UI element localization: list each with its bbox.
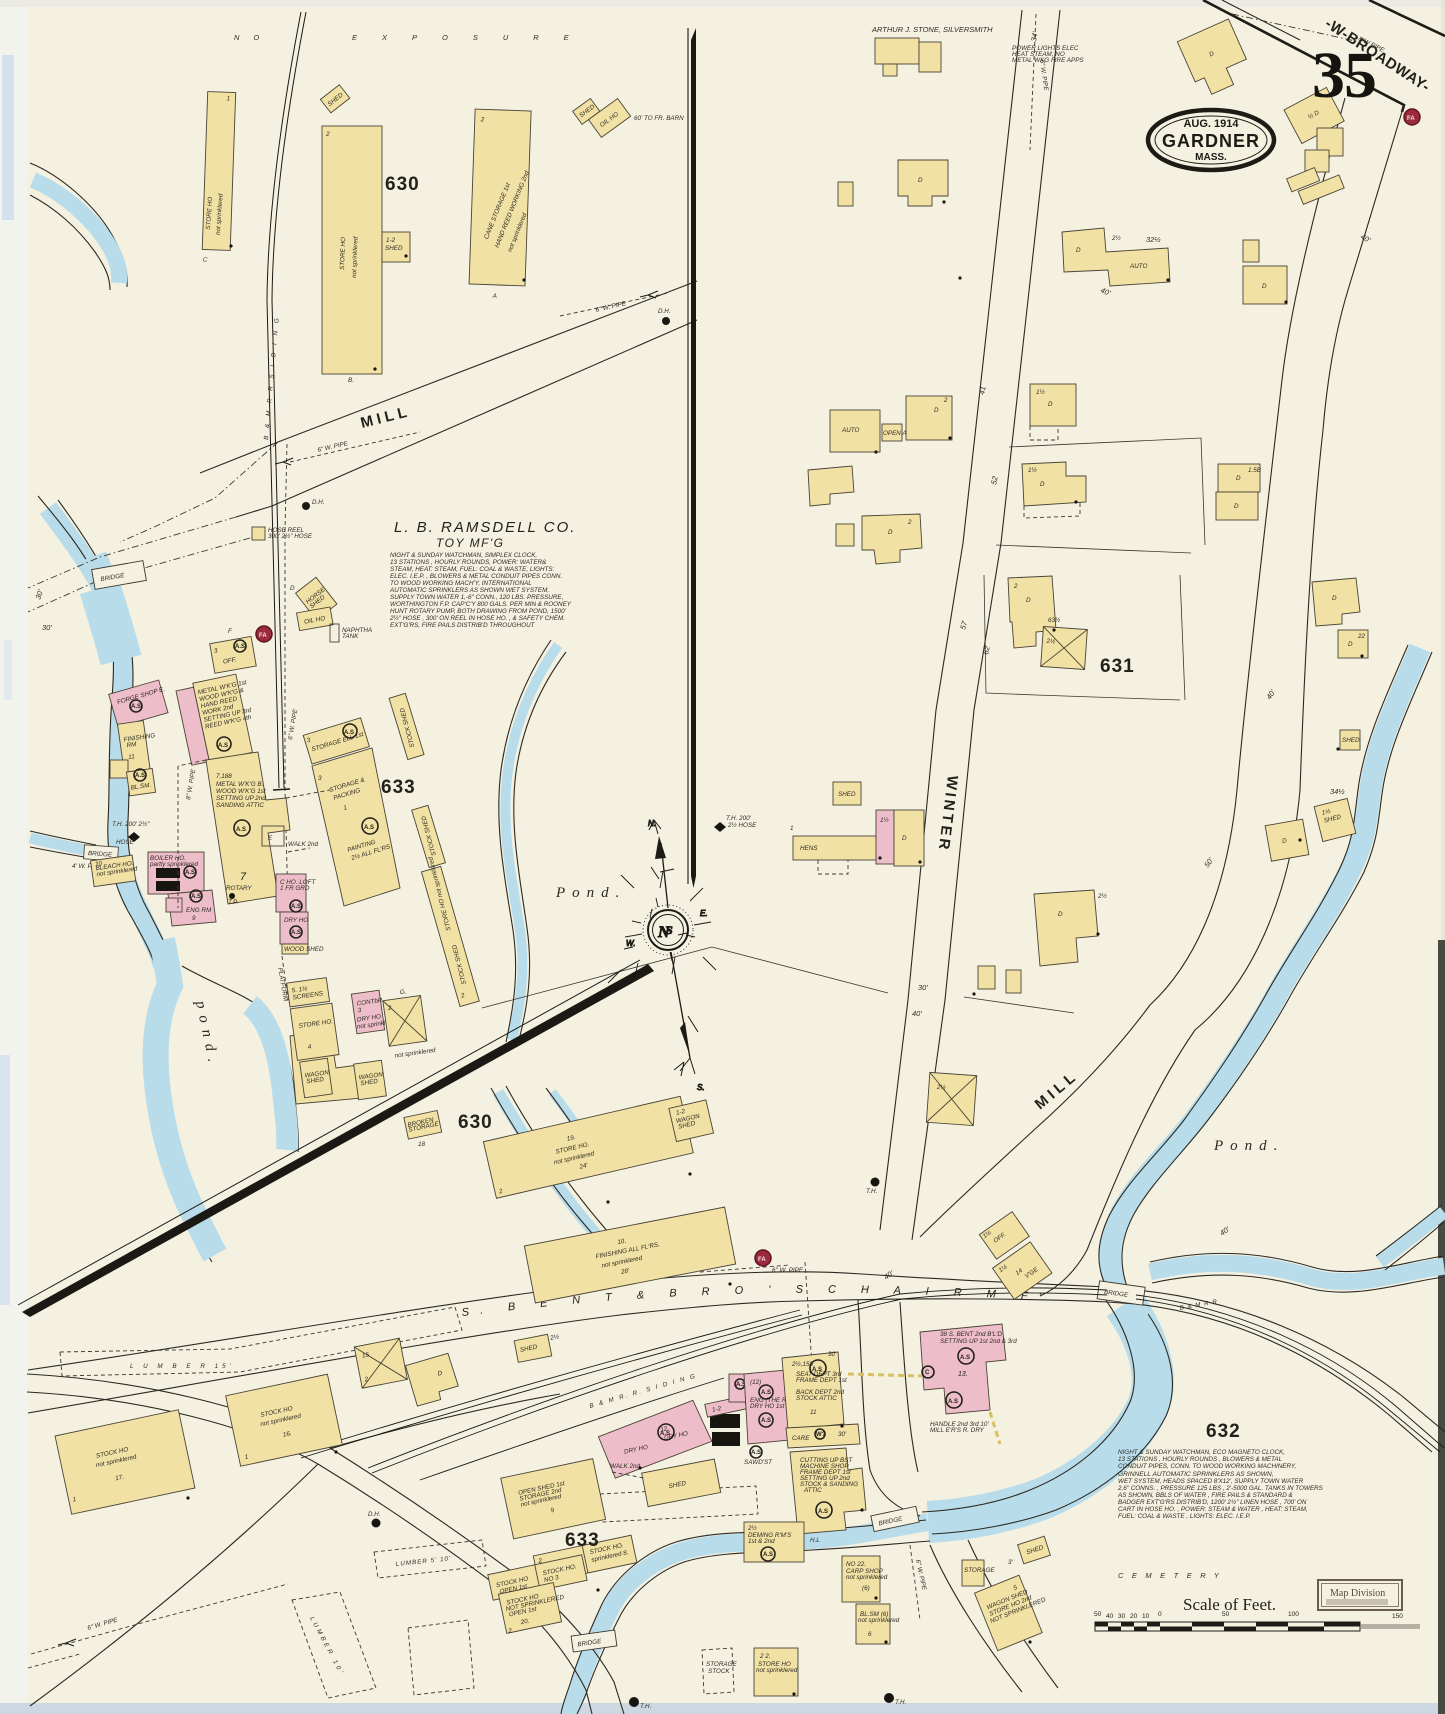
- svg-text:EXT'G'RS, FIRE PAILS DISTRIB'D: EXT'G'RS, FIRE PAILS DISTRIB'D THROUGHOU…: [390, 622, 536, 629]
- svg-text:T.H.: T.H.: [895, 1699, 906, 1706]
- svg-text:34½: 34½: [1330, 787, 1345, 796]
- svg-text:D: D: [918, 177, 923, 184]
- svg-text:A.S: A.S: [364, 825, 374, 831]
- svg-text:H.L: H.L: [810, 1537, 820, 1544]
- svg-text:3: 3: [318, 775, 322, 782]
- svg-text:GARDNER: GARDNER: [1162, 131, 1260, 151]
- svg-text:ENG RM: ENG RM: [186, 907, 212, 914]
- svg-text:631: 631: [1100, 656, 1135, 677]
- svg-text:32½: 32½: [1146, 235, 1161, 244]
- svg-text:30': 30': [838, 1431, 847, 1438]
- svg-text:ARTHUR J. STONE, SILVERSMITH: ARTHUR J. STONE, SILVERSMITH: [871, 25, 993, 34]
- svg-text:632: 632: [1206, 1421, 1241, 1442]
- svg-text:2: 2: [1013, 583, 1018, 590]
- svg-text:L U M B E R 15': L U M B E R 15': [130, 1363, 235, 1370]
- svg-text:BADGER EXT'G'RS DISTRIB'D, 120: BADGER EXT'G'RS DISTRIB'D, 1200' 2½" LIN…: [1118, 1498, 1307, 1506]
- svg-text:WOOD W'K'G 1st: WOOD W'K'G 1st: [216, 788, 266, 795]
- svg-text:ATTIC: ATTIC: [803, 1487, 822, 1494]
- svg-text:A.S: A.S: [235, 644, 245, 650]
- svg-text:NO 22.: NO 22.: [846, 1561, 866, 1568]
- svg-text:AUTO: AUTO: [1129, 263, 1147, 270]
- svg-text:T.H. 200': T.H. 200': [726, 815, 752, 822]
- svg-text:ROTARY: ROTARY: [226, 885, 252, 892]
- svg-text:A.S: A.S: [131, 704, 141, 710]
- svg-text:FUEL: COAL & WASTE , LIGHTS: E: FUEL: COAL & WASTE , LIGHTS: ELEC. I.E.P…: [1118, 1513, 1251, 1520]
- svg-text:SHED: SHED: [385, 245, 403, 252]
- svg-text:Scale of Feet.: Scale of Feet.: [1183, 1595, 1276, 1614]
- svg-text:METAL W'K'G B.: METAL W'K'G B.: [216, 781, 263, 788]
- svg-text:STOCK ATTIC: STOCK ATTIC: [796, 1395, 837, 1402]
- svg-text:60' TO FR. BARN: 60' TO FR. BARN: [634, 115, 684, 122]
- svg-text:1: 1: [226, 95, 230, 102]
- svg-text:SAWD'ST: SAWD'ST: [744, 1459, 773, 1466]
- svg-text:D: D: [1234, 503, 1239, 510]
- svg-text:50: 50: [1094, 1611, 1102, 1618]
- svg-text:C: C: [925, 1370, 930, 1376]
- svg-text:SUPPLY TOWN WATER 1,-6" CONN.,: SUPPLY TOWN WATER 1,-6" CONN., 120 LBS. …: [390, 594, 564, 601]
- svg-text:B.: B.: [348, 377, 354, 384]
- svg-text:SETTING UP 1st 2nd & 3rd: SETTING UP 1st 2nd & 3rd: [940, 1338, 1017, 1345]
- svg-text:L. B. RAMSDELL CO.: L. B. RAMSDELL CO.: [394, 519, 576, 536]
- svg-text:EXPOSURE: EXPOSURE: [352, 33, 594, 42]
- svg-text:13.: 13.: [958, 1371, 968, 1378]
- svg-text:WALK 2nd: WALK 2nd: [610, 1463, 640, 1470]
- svg-text:(6): (6): [862, 1585, 870, 1592]
- svg-text:MASS.: MASS.: [1195, 152, 1227, 163]
- svg-text:13 STATIONS , HOURLY ROUNDS,: 13 STATIONS , HOURLY ROUNDS, POWER: WATE…: [390, 559, 546, 566]
- svg-text:1 FR GRD: 1 FR GRD: [280, 885, 310, 892]
- svg-text:A.S: A.S: [344, 730, 354, 736]
- svg-text:TANK: TANK: [342, 633, 359, 640]
- svg-text:A.S: A.S: [191, 894, 201, 900]
- svg-text:STEAM, HEAT: STEAM, FUEL: COAL: STEAM, HEAT: STEAM, FUEL: COAL & WASTE, …: [390, 566, 555, 573]
- svg-text:D: D: [1236, 475, 1241, 482]
- svg-text:S.: S.: [697, 1083, 705, 1092]
- svg-text:DRY HO 1st: DRY HO 1st: [750, 1403, 785, 1410]
- svg-text:D.H.: D.H.: [658, 308, 671, 315]
- svg-text:35: 35: [1312, 39, 1376, 112]
- svg-text:1: 1: [790, 825, 794, 832]
- svg-text:CONDUIT PIPES, CONN. TO WOOD: CONDUIT PIPES, CONN. TO WOOD WORKING MAC…: [1118, 1463, 1296, 1470]
- svg-text:HOSE: HOSE: [116, 839, 135, 846]
- svg-text:9: 9: [192, 915, 196, 922]
- svg-text:A.S: A.S: [291, 930, 301, 936]
- svg-text:AUG. 1914: AUG. 1914: [1183, 118, 1239, 130]
- svg-text:C: C: [203, 256, 208, 263]
- svg-text:T.H.: T.H.: [866, 1188, 877, 1195]
- svg-text:STORAGE: STORAGE: [706, 1661, 737, 1668]
- svg-text:630: 630: [458, 1112, 493, 1133]
- svg-text:A.S: A.S: [761, 1390, 771, 1396]
- svg-text:S: S: [666, 923, 673, 937]
- svg-text:150: 150: [1392, 1613, 1403, 1620]
- svg-text:2,6" CONNS. , PRESSURE 125 LBS: 2,6" CONNS. , PRESSURE 125 LBS , 2'-5000…: [1117, 1485, 1324, 1492]
- svg-text:SHED: SHED: [1342, 737, 1360, 744]
- svg-text:NIGHT & SUNDAY WATCHMAN, SIMPL: NIGHT & SUNDAY WATCHMAN, SIMPLEX CLOCK,: [390, 552, 537, 559]
- svg-text:CART IN HOSE HO. , POWER: STEA: CART IN HOSE HO. , POWER: STEAM & WATER …: [1118, 1506, 1308, 1513]
- svg-text:METAL WKG FIRE APPS: METAL WKG FIRE APPS: [1012, 57, 1084, 64]
- svg-text:10: 10: [1142, 1613, 1150, 1620]
- svg-text:633: 633: [381, 777, 416, 798]
- svg-text:STORE HO: STORE HO: [339, 237, 347, 270]
- svg-text:G.: G.: [399, 988, 407, 996]
- svg-text:N.: N.: [648, 819, 656, 828]
- svg-text:2½: 2½: [1097, 892, 1108, 900]
- svg-text:E.: E.: [700, 909, 708, 918]
- svg-text:2: 2: [325, 131, 330, 138]
- svg-text:(12): (12): [750, 1379, 761, 1386]
- svg-text:HUNT ROTARY PUMP, BOTH DRAWIN: HUNT ROTARY PUMP, BOTH DRAWING FROM POND…: [390, 608, 567, 615]
- svg-text:D: D: [934, 407, 939, 414]
- svg-text:22: 22: [1357, 633, 1366, 640]
- svg-text:2 2.: 2 2.: [759, 1653, 771, 1660]
- svg-text:RM: RM: [126, 741, 137, 749]
- svg-text:T.H.: T.H.: [640, 1703, 651, 1710]
- svg-text:2: 2: [943, 397, 948, 404]
- svg-text:ELEC. I.E.P. , BLOWERS & METAL: ELEC. I.E.P. , BLOWERS & METAL CONDUIT P…: [390, 573, 562, 580]
- svg-text:2: 2: [480, 116, 485, 123]
- svg-text:HENS: HENS: [800, 845, 818, 852]
- svg-text:STORAGE: STORAGE: [964, 1567, 995, 1574]
- svg-text:D: D: [1076, 247, 1081, 254]
- svg-text:NIGHT & SUNDAY WATCHMAN, ECO: NIGHT & SUNDAY WATCHMAN, ECO MAGNETO CLO…: [1118, 1449, 1285, 1456]
- svg-text:SHED: SHED: [838, 791, 856, 798]
- svg-text:DRY HO: DRY HO: [284, 917, 308, 924]
- svg-text:D: D: [1048, 401, 1053, 408]
- svg-text:NO: NO: [234, 33, 273, 42]
- svg-text:2½: 2½: [1111, 234, 1122, 242]
- svg-text:A.S: A.S: [763, 1552, 773, 1558]
- svg-text:40': 40': [912, 1009, 922, 1018]
- svg-text:50: 50: [1222, 1611, 1230, 1618]
- svg-text:D: D: [1040, 481, 1045, 488]
- svg-text:D: D: [902, 835, 907, 842]
- svg-text:FA: FA: [758, 1257, 766, 1263]
- svg-text:Pond.: Pond.: [555, 885, 626, 901]
- svg-text:TOY MF'G: TOY MF'G: [436, 536, 505, 550]
- svg-text:not sprinklered: not sprinklered: [846, 1574, 888, 1581]
- svg-text:300' 2½" HOSE: 300' 2½" HOSE: [268, 532, 313, 540]
- svg-text:11: 11: [810, 1409, 817, 1416]
- svg-text:A.S: A.S: [818, 1509, 828, 1515]
- svg-text:30': 30': [42, 623, 52, 632]
- svg-text:7,188: 7,188: [216, 773, 232, 780]
- svg-text:D.H.: D.H.: [368, 1511, 381, 1518]
- svg-text:1.5B: 1.5B: [1248, 467, 1261, 474]
- svg-text:2½: 2½: [747, 1524, 758, 1532]
- svg-text:2½: 2½: [1045, 637, 1056, 646]
- svg-text:T.H. 200' 2½": T.H. 200' 2½": [112, 820, 150, 828]
- svg-text:D: D: [888, 529, 893, 536]
- svg-text:W.: W.: [626, 939, 635, 948]
- svg-text:TO WOOD WORKING MACH'Y, INTER: TO WOOD WORKING MACH'Y, INTERNATIONAL: [390, 580, 532, 587]
- svg-text:633: 633: [565, 1530, 600, 1551]
- svg-text:SANDING ATTIC: SANDING ATTIC: [216, 802, 264, 809]
- svg-text:WORTHINGTON F.P. CAP'C'Y 800: WORTHINGTON F.P. CAP'C'Y 800 GALS. PER M…: [390, 601, 572, 608]
- svg-text:0: 0: [1158, 1611, 1162, 1618]
- svg-text:Map Division: Map Division: [1330, 1588, 1385, 1599]
- svg-text:CEMETERY: CEMETERY: [1118, 1571, 1227, 1580]
- svg-text:CARE: CARE: [792, 1435, 810, 1442]
- svg-text:30': 30': [828, 1351, 837, 1358]
- svg-text:A.S: A.S: [960, 1355, 970, 1361]
- svg-text:18: 18: [418, 1141, 426, 1148]
- svg-text:WALK 2nd: WALK 2nd: [288, 841, 318, 848]
- svg-text:2½: 2½: [936, 1083, 947, 1092]
- svg-text:A.S: A.S: [751, 1450, 761, 1456]
- svg-text:AUTOMATIC SPRINKLERS AS SHOWN: AUTOMATIC SPRINKLERS AS SHOWN WET SYSTEM…: [389, 587, 549, 594]
- svg-text:A.S: A.S: [761, 1418, 771, 1424]
- svg-text:11: 11: [128, 753, 135, 761]
- svg-text:2½" HOSE , 300' ON REEL IN HOS: 2½" HOSE , 300' ON REEL IN HOSE HO. , & …: [389, 614, 565, 622]
- svg-text:not sprinklered: not sprinklered: [858, 1617, 900, 1624]
- svg-text:1½: 1½: [880, 816, 890, 824]
- svg-text:not sprinklered: not sprinklered: [351, 236, 359, 278]
- svg-text:2: 2: [907, 519, 912, 526]
- svg-text:Pond.: Pond.: [1213, 1138, 1284, 1154]
- svg-text:A.S: A.S: [948, 1399, 958, 1405]
- svg-text:A.S: A.S: [812, 1367, 822, 1373]
- svg-text:WET SYSTEM, HEADS SPACED 8'X1: WET SYSTEM, HEADS SPACED 8'X12', SUPPLY …: [1118, 1478, 1304, 1485]
- svg-text:6" W. PIPE: 6" W. PIPE: [772, 1267, 804, 1274]
- svg-text:not sprinklered: not sprinklered: [756, 1667, 798, 1674]
- svg-text:W?: W?: [816, 1432, 826, 1438]
- svg-text:20: 20: [1130, 1613, 1138, 1620]
- svg-text:T.P.: T.P.: [228, 899, 238, 906]
- svg-text:STOCK: STOCK: [708, 1668, 730, 1675]
- svg-text:13 STATIONS , HOURLY ROUNDS: 13 STATIONS , HOURLY ROUNDS , BLOWERS & …: [1118, 1456, 1283, 1463]
- svg-text:1½: 1½: [1036, 388, 1046, 396]
- svg-text:FA: FA: [1407, 116, 1415, 122]
- svg-text:4' W. P.: 4' W. P.: [72, 863, 93, 870]
- svg-text:100: 100: [1288, 1611, 1299, 1618]
- svg-text:GRINNELL AUTOMATIC SPRINKLER: GRINNELL AUTOMATIC SPRINKLERS AS SHOWN,: [1118, 1471, 1274, 1478]
- svg-text:A.S: A.S: [218, 743, 228, 749]
- svg-text:FA: FA: [259, 633, 267, 639]
- svg-text:30': 30': [918, 983, 928, 992]
- svg-text:40: 40: [1106, 1613, 1114, 1620]
- svg-text:3': 3': [1008, 1559, 1014, 1566]
- svg-text:7: 7: [240, 871, 247, 883]
- svg-text:A.S: A.S: [291, 904, 301, 910]
- svg-text:AUTO: AUTO: [841, 427, 859, 434]
- svg-text:D: D: [1058, 911, 1063, 918]
- svg-text:63½: 63½: [1048, 616, 1061, 624]
- svg-text:partly sprinklered: partly sprinklered: [149, 861, 198, 868]
- svg-text:FRAME DEPT 1st: FRAME DEPT 1st: [796, 1377, 847, 1384]
- svg-text:D: D: [1262, 283, 1267, 290]
- svg-text:D: D: [290, 585, 295, 592]
- svg-text:1st & 2nd: 1st & 2nd: [748, 1538, 775, 1545]
- svg-text:D: D: [1332, 595, 1337, 602]
- svg-text:630: 630: [385, 174, 420, 195]
- svg-text:A.S: A.S: [236, 827, 246, 833]
- svg-text:MILL E'R'S R. DRY: MILL E'R'S R. DRY: [930, 1427, 985, 1434]
- svg-text:D.H.: D.H.: [312, 499, 325, 506]
- svg-text:A.S: A.S: [185, 870, 195, 876]
- svg-text:SETTING UP 2nd: SETTING UP 2nd: [216, 795, 266, 802]
- svg-text:D: D: [1348, 641, 1353, 648]
- svg-text:A.S: A.S: [135, 773, 145, 779]
- svg-text:OPEN A: OPEN A: [883, 430, 907, 437]
- svg-text:1½: 1½: [1028, 466, 1038, 474]
- svg-text:38 S. BENT 2nd B'L'D: 38 S. BENT 2nd B'L'D: [940, 1331, 1002, 1338]
- svg-text:A.S: A.S: [660, 1431, 670, 1437]
- svg-text:1-2: 1-2: [386, 237, 396, 244]
- svg-text:AS SHOWN, BBLS OF WATER , FIRE: AS SHOWN, BBLS OF WATER , FIRE PAILS & S…: [1117, 1492, 1293, 1499]
- svg-text:WOOD SHED: WOOD SHED: [284, 946, 324, 953]
- svg-text:6: 6: [868, 1631, 872, 1638]
- svg-text:30: 30: [1118, 1613, 1126, 1620]
- svg-text:2½ HOSE: 2½ HOSE: [727, 821, 757, 829]
- svg-text:A: A: [492, 293, 497, 300]
- svg-text:D: D: [1026, 597, 1031, 604]
